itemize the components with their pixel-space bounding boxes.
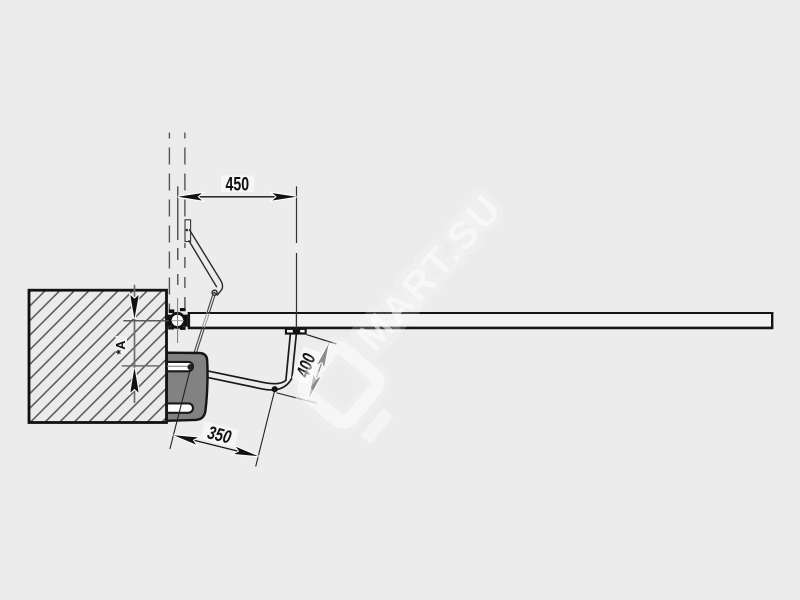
svg-text:*A: *A <box>114 341 128 355</box>
svg-text:450: 450 <box>226 175 250 196</box>
